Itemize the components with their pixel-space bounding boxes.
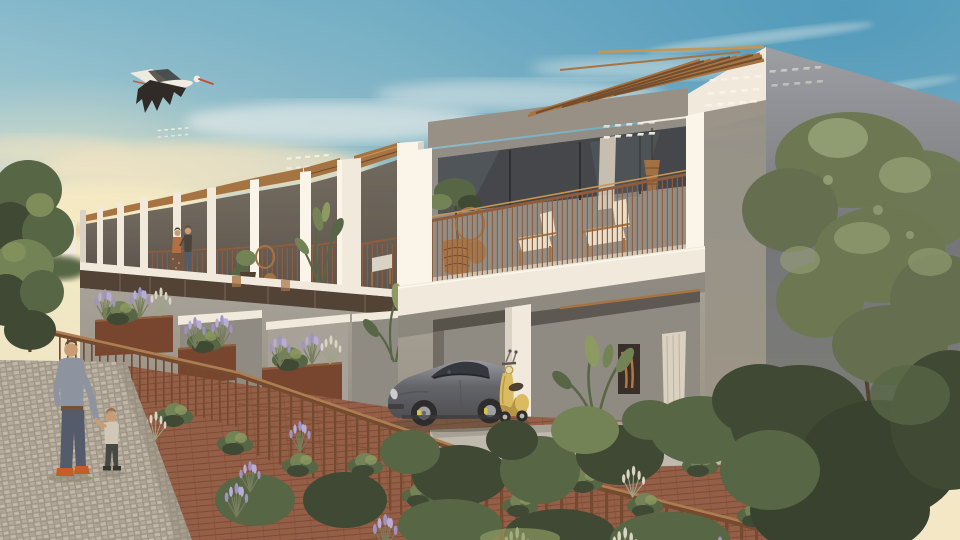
- architectural-rendering: [0, 0, 960, 540]
- scene-canvas: [0, 0, 960, 540]
- warm-grade: [0, 0, 960, 540]
